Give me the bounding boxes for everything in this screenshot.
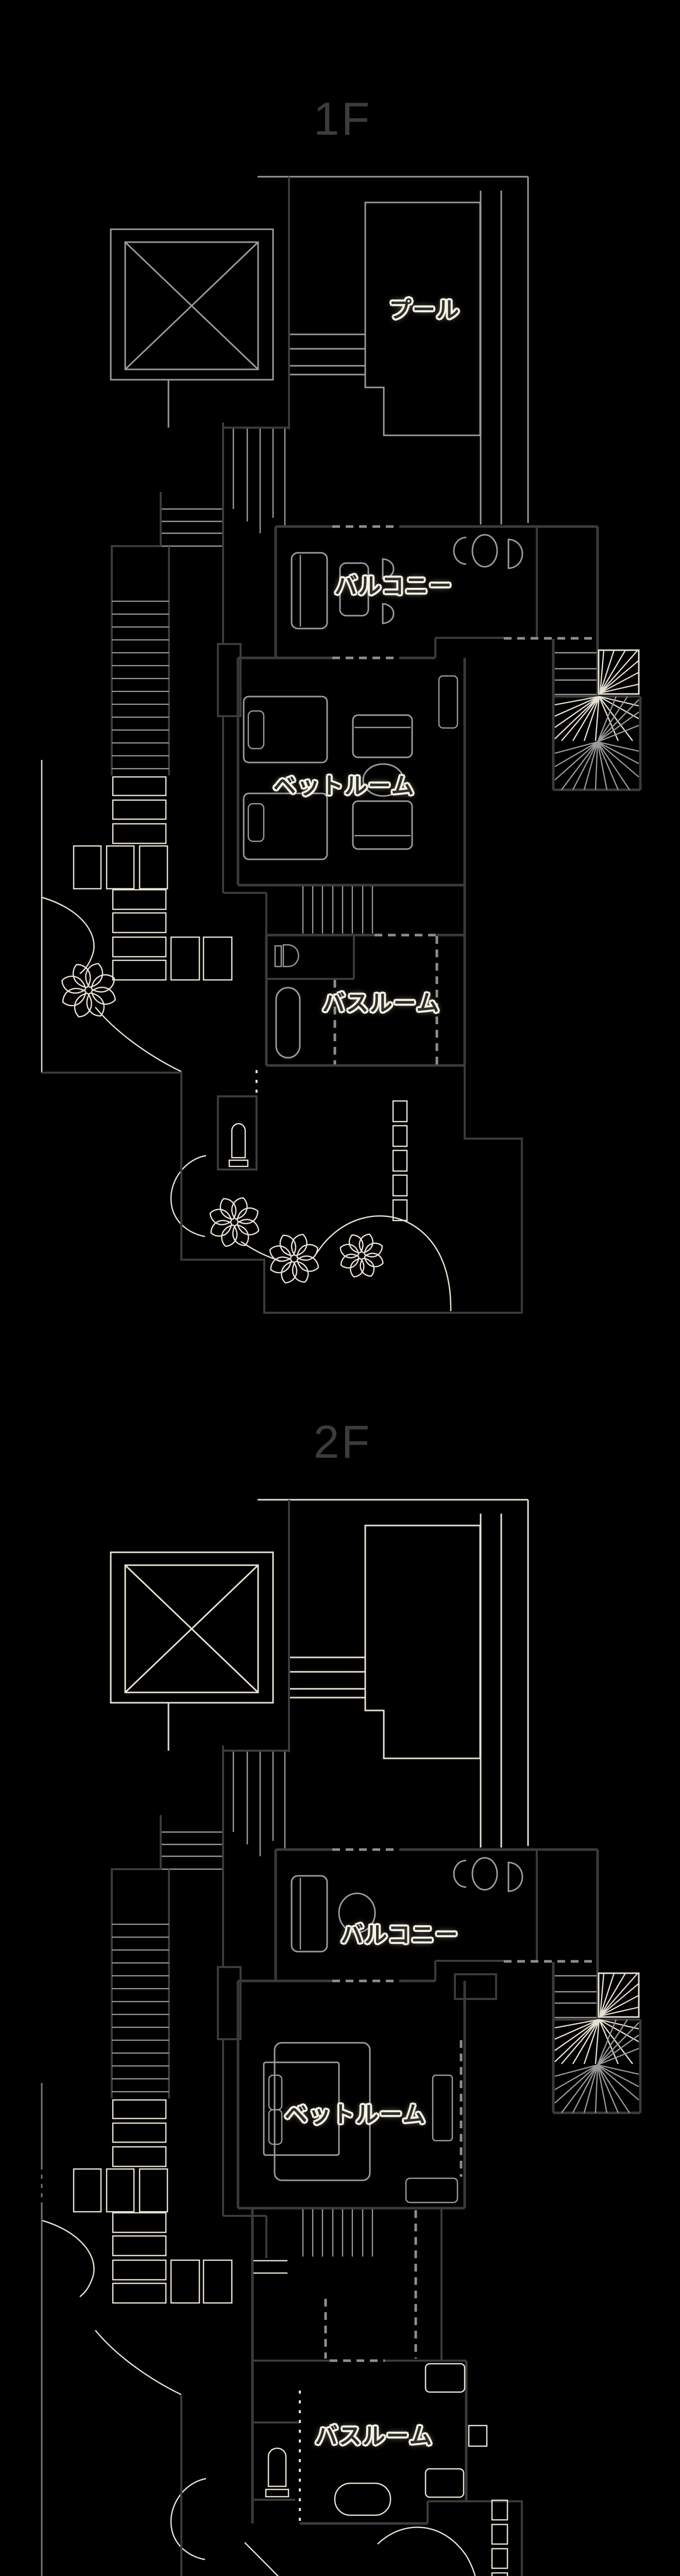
room-label-bathroom-2f: バスルーム	[315, 2417, 433, 2450]
room-label-balcony-1f: バルコニー	[334, 567, 452, 600]
floor-plan-svg	[0, 0, 680, 2576]
room-label-balcony-2f: バルコニー	[341, 1916, 458, 1949]
floor-title-2f: 2F	[313, 1416, 371, 1469]
room-label-bedroom-1f: ベットルーム	[274, 767, 415, 800]
floor-title-1f: 1F	[313, 93, 371, 146]
room-label-bedroom-2f: ベットルーム	[285, 2096, 427, 2129]
floor-plan-2f	[42, 1500, 640, 2576]
floor-plan-1f	[42, 177, 640, 1313]
room-label-pool-1f: プール	[389, 291, 460, 324]
room-label-bathroom-1f: バスルーム	[322, 985, 440, 1018]
